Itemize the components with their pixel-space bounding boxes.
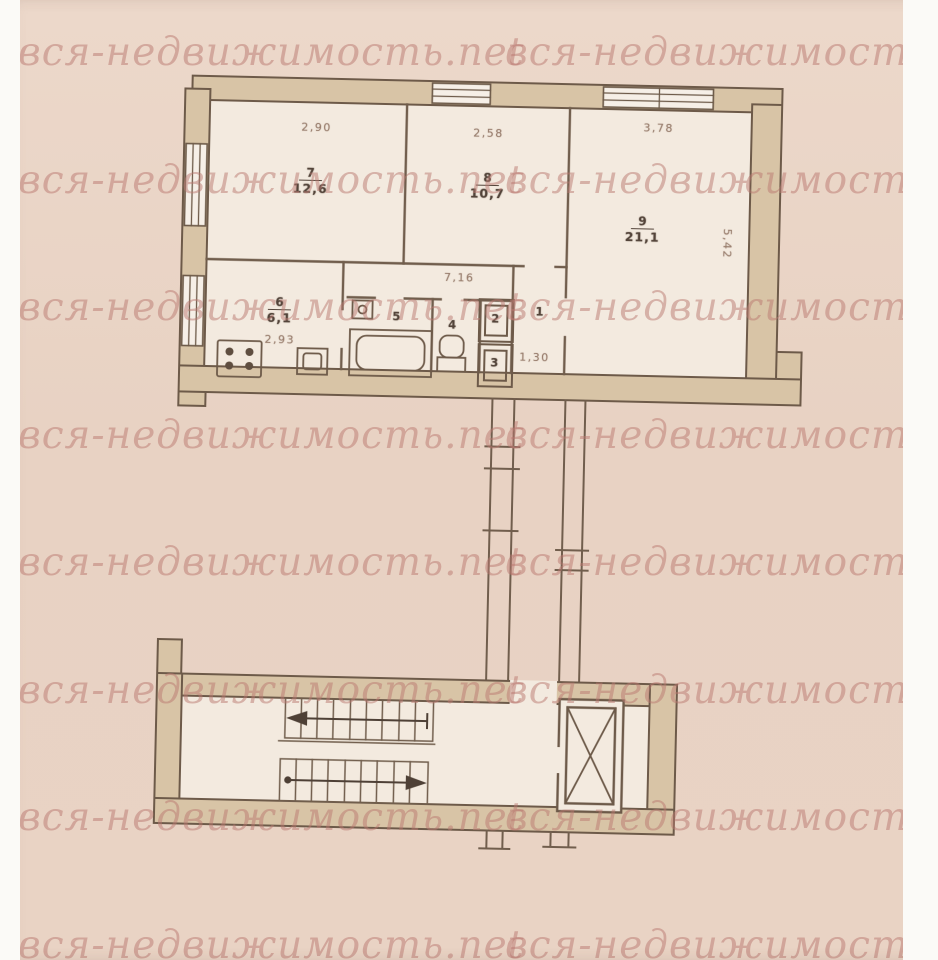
closet-top-number: 2 [491, 311, 499, 325]
kitchen-number: 6 [268, 296, 291, 311]
kitchen-area: 6,1 [267, 310, 292, 326]
room-9-label: 9 21,1 [625, 215, 660, 245]
dim-room8-width: 2,58 [473, 127, 504, 141]
floor-plan: 7 12,6 8 10,7 9 21,1 6 6,1 5 4 2 3 1 2,9… [0, 0, 938, 960]
dim-corridor-length: 7,16 [444, 271, 475, 285]
dim-room9-depth: 5,42 [720, 228, 734, 259]
kitchen-label: 6 6,1 [267, 296, 293, 326]
room-8-number: 8 [476, 172, 499, 187]
closet-bottom-number: 3 [490, 355, 498, 369]
room-7-number: 7 [299, 167, 322, 182]
photo-margin-right [903, 0, 938, 960]
dim-room9-width: 3,78 [643, 121, 674, 135]
room-9-number: 9 [631, 215, 654, 230]
room-8-area: 10,7 [470, 185, 505, 201]
room-9-area: 21,1 [625, 229, 660, 245]
hall-number: 1 [535, 304, 543, 318]
room-7-label: 7 12,6 [293, 166, 328, 196]
bathroom-number: 5 [392, 309, 400, 323]
room-8-label: 8 10,7 [470, 171, 505, 201]
toilet-number: 4 [448, 317, 456, 331]
floor-plan-drawing [0, 0, 938, 960]
dim-room7-width: 2,90 [301, 121, 332, 135]
room-7-area: 12,6 [293, 180, 328, 196]
photo-margin-left [0, 0, 20, 960]
floor-plan-photo: 7 12,6 8 10,7 9 21,1 6 6,1 5 4 2 3 1 2,9… [0, 0, 938, 960]
dim-kitchen-width: 2,93 [264, 333, 295, 347]
dim-closet-width: 1,30 [519, 351, 550, 365]
